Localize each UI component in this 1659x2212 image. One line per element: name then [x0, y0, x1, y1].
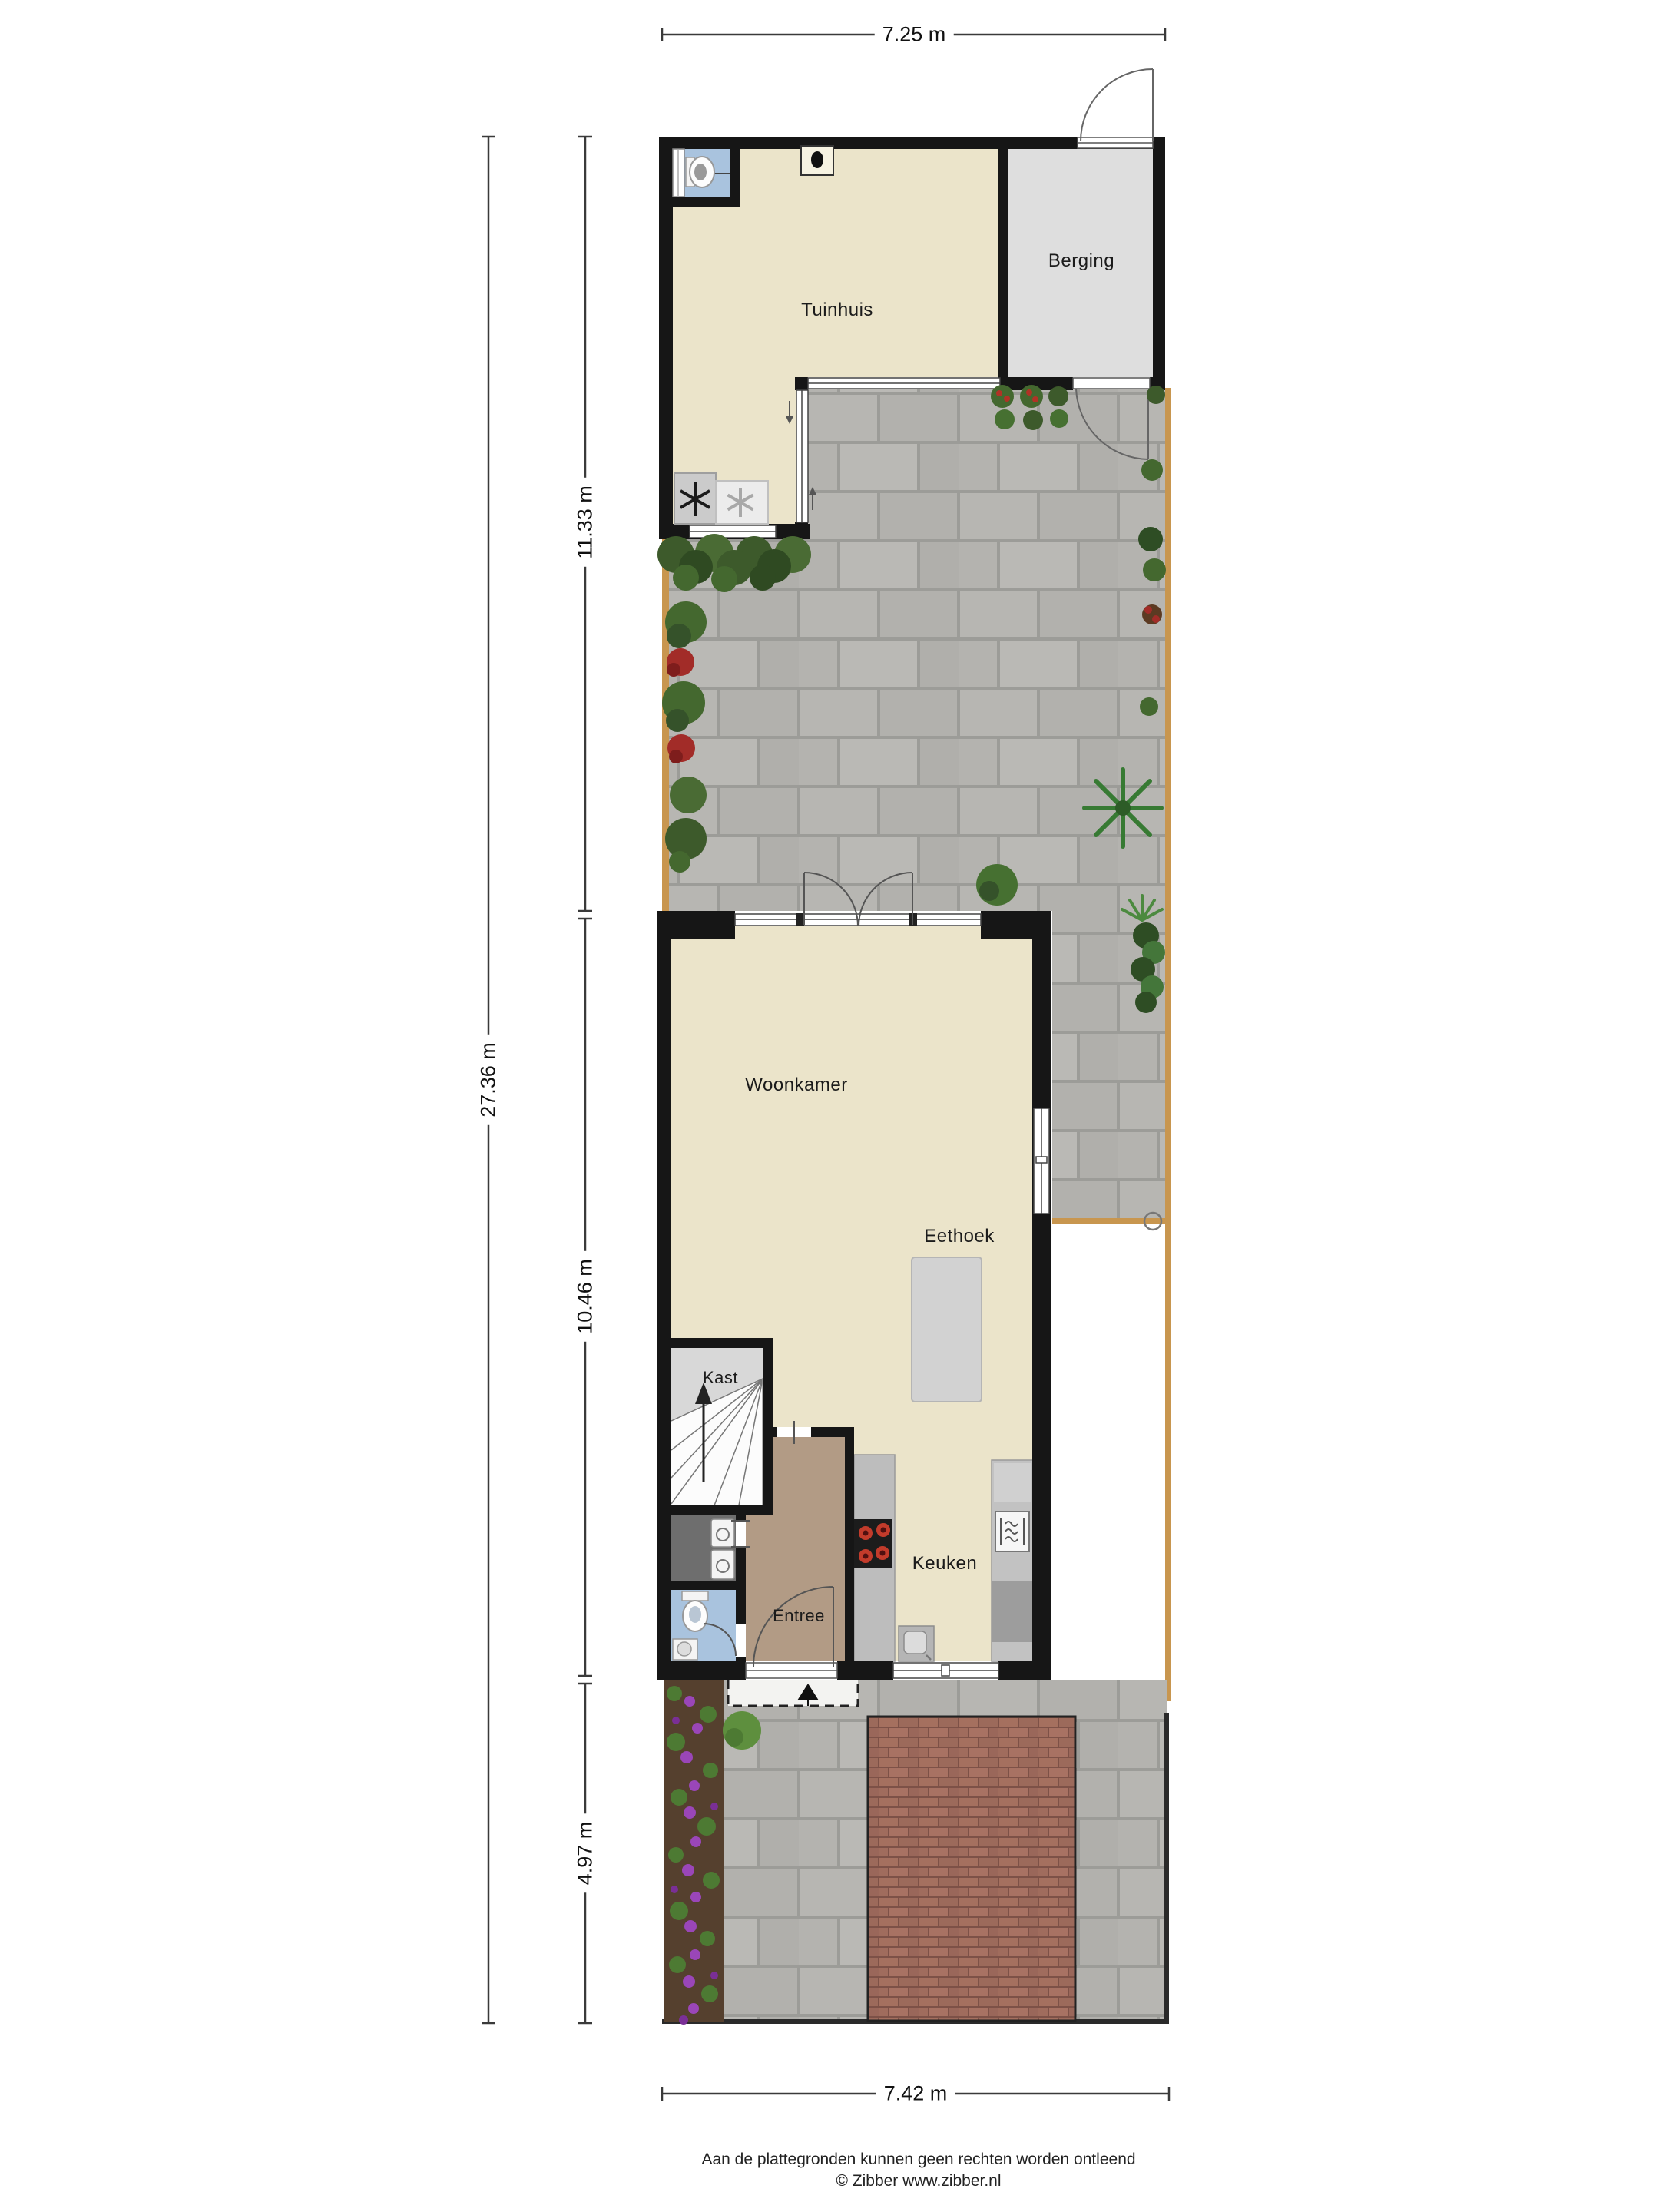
flower-bed: [664, 1680, 724, 2025]
floorplan-graphic: [0, 0, 1659, 2212]
dimension-width-back: 7.25 m: [875, 22, 954, 48]
room-label-entree: Entree: [773, 1606, 825, 1626]
cooktop-icon: [854, 1519, 892, 1568]
room-label-kast: Kast: [703, 1368, 738, 1388]
palm-plant: [1084, 770, 1161, 846]
room-label-woonkamer: Woonkamer: [745, 1075, 847, 1096]
floorplan-page: 7.25 m 27.36 m 11.33 m 10.46 m 4.97 m 7.…: [0, 0, 1659, 2212]
kitchen-sink-icon: [899, 1626, 934, 1661]
main-house: [657, 873, 1051, 1680]
house-toilet-icon: [682, 1591, 708, 1631]
washer-icon: [674, 473, 716, 524]
dimension-back-depth: 11.33 m: [572, 478, 599, 567]
veranda-top-edge: [1052, 1218, 1167, 1224]
oven-icon: [995, 1512, 1029, 1551]
toilet-icon: [686, 157, 714, 187]
veranda-area: [1052, 1213, 1167, 1701]
right-garden-fence: [1165, 388, 1171, 1701]
livingroom-side-window: [1034, 1108, 1049, 1214]
dimension-front-depth: 4.97 m: [572, 1814, 599, 1893]
front-garden: [662, 1680, 1169, 2025]
footer-credit: © Zibber www.zibber.nl: [836, 2172, 1001, 2190]
front-garden-right-border: [1164, 1713, 1169, 2023]
dimension-width-front: 7.42 m: [876, 2081, 955, 2108]
boiler-icon: [801, 146, 833, 175]
room-label-tuinhuis: Tuinhuis: [801, 300, 873, 321]
footer-disclaimer: Aan de plattegronden kunnen geen rechten…: [701, 2151, 1135, 2169]
dimension-house-depth: 10.46 m: [572, 1251, 599, 1342]
tuinhuis-back-window: [690, 525, 776, 538]
tuinhuis-window-band: [808, 378, 1000, 389]
driveway-bricks: [868, 1717, 1075, 2021]
dryer-icon: [716, 481, 768, 524]
entrance-porch: [728, 1680, 858, 1706]
room-label-berging: Berging: [1048, 250, 1114, 272]
dimension-total-depth: 27.36 m: [475, 1035, 502, 1125]
dining-table: [912, 1257, 982, 1402]
room-label-keuken: Keuken: [912, 1553, 977, 1575]
berging-top-door: [1078, 69, 1153, 148]
room-label-eethoek: Eethoek: [924, 1226, 995, 1247]
hand-basin-icon: [673, 1639, 697, 1660]
kitchen-window: [893, 1663, 998, 1678]
